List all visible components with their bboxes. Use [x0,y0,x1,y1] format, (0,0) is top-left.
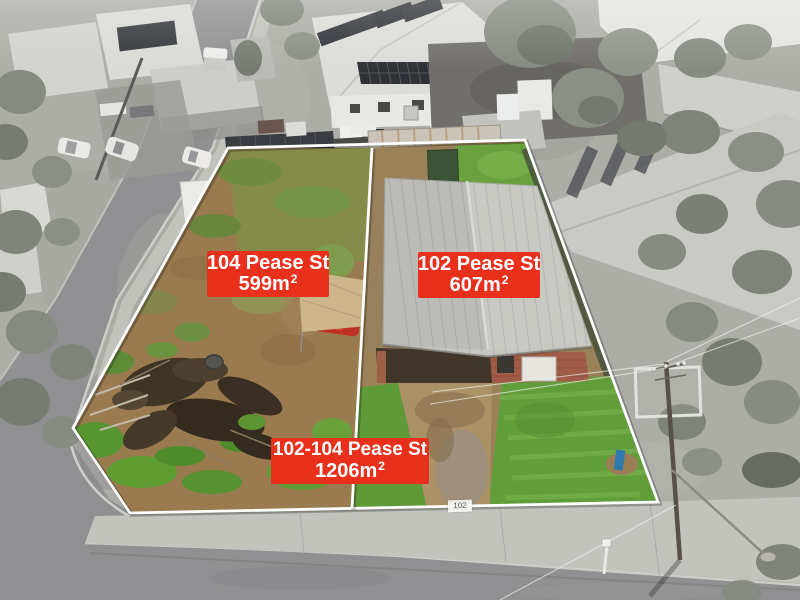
area-superscript: 2 [502,273,509,287]
combined-area: 1206m2 [315,461,385,484]
aerial-scene [0,0,800,600]
house-number-sign: 102 [448,500,472,513]
area-value: 607m [450,274,501,296]
area-superscript: 2 [378,459,385,473]
area-value: 1206m [315,460,377,482]
lot-102-area: 607m2 [450,275,509,298]
area-superscript: 2 [291,272,298,286]
combined-lot-label: 102-104 Pease St 1206m2 [271,438,429,484]
combined-address: 102-104 Pease St [273,439,427,461]
lot-104-label: 104 Pease St 599m2 [207,251,329,297]
lot-102-address: 102 Pease St [418,253,540,275]
lot-104-area: 599m2 [239,274,298,297]
lot-102-label: 102 Pease St 607m2 [418,252,540,298]
aerial-photo: 104 Pease St 599m2 102 Pease St 607m2 10… [0,0,800,600]
area-value: 599m [239,273,290,295]
lot-104-address: 104 Pease St [207,252,329,274]
